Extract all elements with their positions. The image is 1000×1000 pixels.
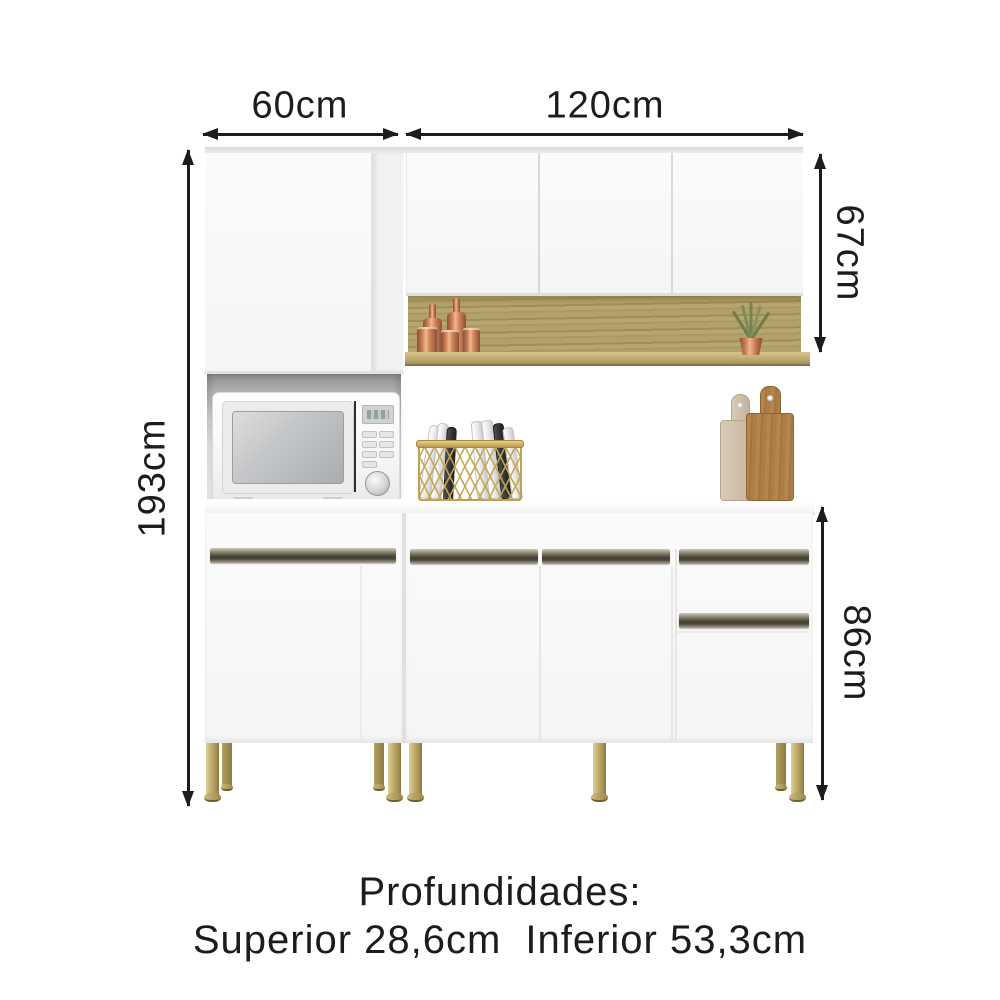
leg-foot [373, 784, 385, 791]
microwave-button [379, 431, 394, 438]
basket-rim [416, 440, 524, 448]
door-handle-groove [210, 548, 396, 563]
microwave-control-panel [359, 399, 395, 495]
base-door-gap [360, 566, 362, 741]
leg-foot [221, 784, 233, 791]
cabinet-leg [791, 743, 804, 795]
base-cabinet-divider [402, 513, 406, 743]
copper-canister-group [415, 298, 490, 354]
board-hole [767, 395, 773, 401]
leg-foot [407, 793, 424, 802]
copper-canister [441, 330, 459, 352]
basket-mesh [418, 444, 522, 501]
cabinet-leg [206, 743, 219, 795]
cabinet-back-leg [222, 743, 232, 786]
microwave-door [222, 401, 354, 494]
cabinet-back-leg [374, 743, 384, 786]
base-cabinet-right [406, 513, 813, 743]
wall-cabinet-door-gap [538, 153, 540, 295]
copper-canister [463, 328, 480, 352]
microwave-window [232, 411, 344, 484]
dim-label-upper-height: 67cm [828, 205, 871, 302]
cabinet-leg [409, 743, 422, 795]
depths-heading: Profundidades: [0, 870, 1000, 915]
depths-values: Superior 28,6cmInferior 53,3cm [0, 918, 1000, 963]
drawer-section-gap [675, 549, 677, 741]
base-door-gap [539, 566, 541, 741]
microwave-button [379, 451, 394, 458]
dim-arrow-width-left [203, 133, 398, 136]
microwave-door-seam [354, 401, 356, 492]
cabinet-leg [388, 743, 401, 795]
potted-plant [733, 302, 769, 354]
microwave-dial [365, 471, 390, 496]
leg-foot [591, 793, 608, 802]
door-handle-groove [410, 549, 538, 564]
drawer-handle-groove [679, 549, 809, 564]
drawer-handle-groove [679, 613, 809, 628]
dim-label-total-height: 193cm [132, 418, 175, 537]
tall-cabinet-upper-door [205, 153, 372, 371]
dim-arrow-upper-height [819, 154, 822, 352]
door-handle-groove [542, 549, 670, 564]
microwave-start-button [362, 461, 377, 468]
board-body [746, 413, 794, 501]
cutting-board-dark [746, 386, 794, 499]
leg-foot [386, 793, 403, 802]
depth-inferior: Inferior 53,3cm [525, 918, 807, 962]
wire-basket-with-plates [418, 418, 522, 499]
cabinet-leg [593, 743, 606, 795]
plant-pot [738, 338, 764, 355]
microwave-button [362, 441, 377, 448]
tall-cabinet-door-gap [372, 153, 374, 371]
microwave-display [362, 405, 394, 424]
microwave [212, 392, 400, 503]
leg-foot [775, 784, 787, 791]
copper-canister [417, 327, 437, 352]
dim-arrow-lower-height [821, 507, 824, 800]
dim-arrow-width-right [406, 133, 803, 136]
microwave-button [362, 431, 377, 438]
microwave-display-digits [367, 410, 389, 419]
depth-superior: Superior 28,6cm [193, 918, 501, 962]
leg-foot [789, 793, 806, 802]
diagram-canvas: 60cm 120cm 193cm 67cm 86cm Profundidades… [0, 0, 1000, 1000]
drawer-gap [677, 631, 809, 633]
wall-cabinet-door-gap [671, 153, 673, 295]
microwave-button [362, 451, 377, 458]
board-hole [737, 402, 743, 408]
leg-foot [204, 793, 221, 802]
cabinet-back-leg [776, 743, 786, 786]
dim-label-lower-height: 86cm [835, 605, 878, 702]
dim-label-width-right: 120cm [545, 85, 664, 128]
dim-label-width-left: 60cm [252, 85, 349, 128]
base-door-gap [671, 566, 673, 741]
tall-cabinet-side-panel [374, 153, 403, 371]
microwave-button [379, 441, 394, 448]
dim-arrow-total-height [187, 150, 190, 806]
wall-cabinet-doors [406, 153, 803, 295]
